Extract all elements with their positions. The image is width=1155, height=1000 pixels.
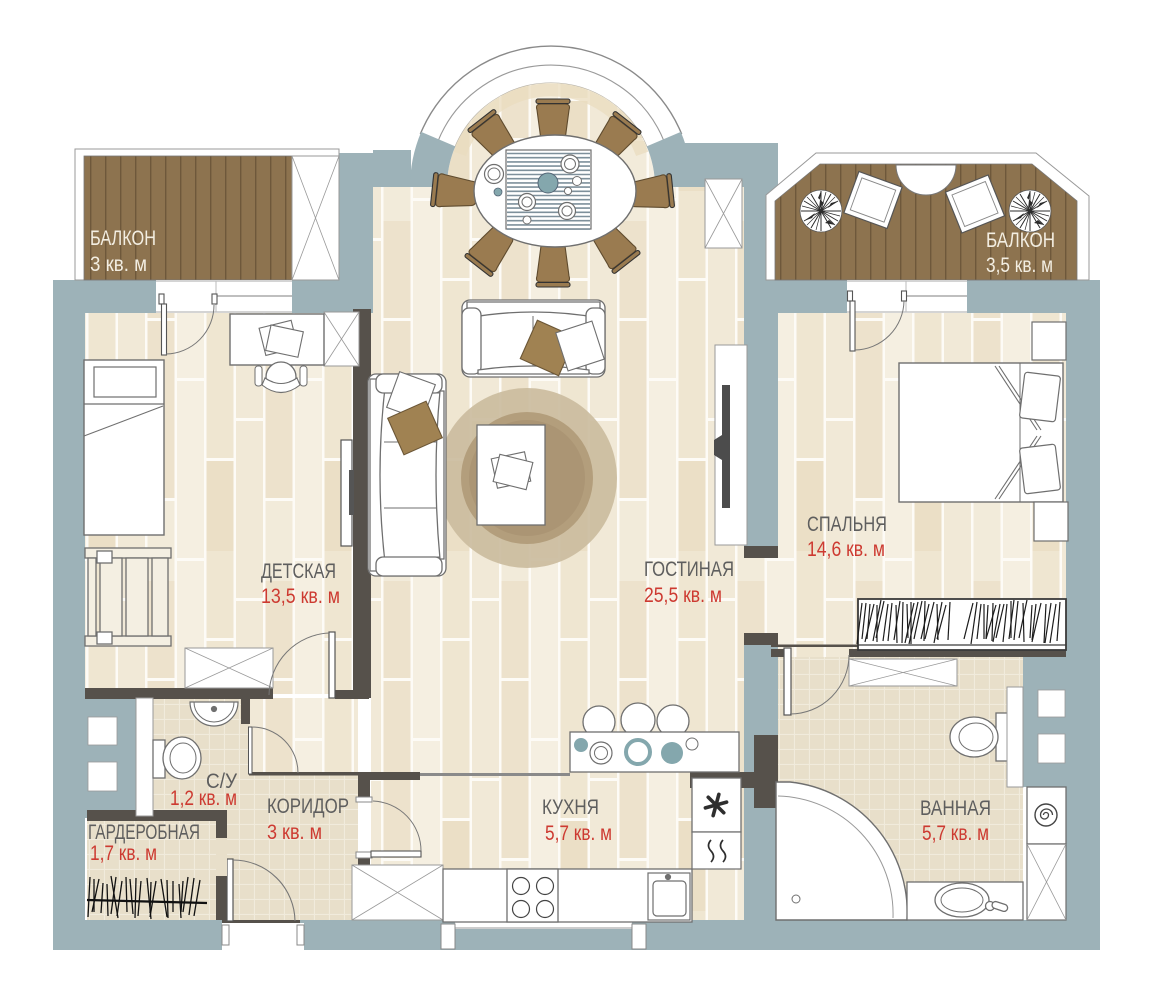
svg-text:БАЛКОН: БАЛКОН <box>986 229 1055 252</box>
svg-text:1,7 кв. м: 1,7 кв. м <box>90 842 157 865</box>
svg-text:ДЕТСКАЯ: ДЕТСКАЯ <box>261 560 336 583</box>
svg-text:3,5 кв. м: 3,5 кв. м <box>986 254 1053 277</box>
svg-text:5,7 кв. м: 5,7 кв. м <box>922 822 989 845</box>
svg-text:ВАННАЯ: ВАННАЯ <box>920 797 991 820</box>
svg-text:5,7 кв. м: 5,7 кв. м <box>545 822 612 845</box>
svg-text:КУХНЯ: КУХНЯ <box>542 796 599 819</box>
svg-text:3 кв. м: 3 кв. м <box>90 253 147 276</box>
svg-text:1,2 кв. м: 1,2 кв. м <box>170 787 237 810</box>
svg-text:13,5 кв. м: 13,5 кв. м <box>261 585 340 608</box>
svg-text:ГАРДЕРОБНАЯ: ГАРДЕРОБНАЯ <box>88 821 200 844</box>
svg-text:25,5 кв. м: 25,5 кв. м <box>644 584 722 607</box>
svg-text:КОРИДОР: КОРИДОР <box>267 795 349 818</box>
svg-text:БАЛКОН: БАЛКОН <box>90 227 156 250</box>
svg-text:3 кв. м: 3 кв. м <box>267 821 322 844</box>
svg-text:СПАЛЬНЯ: СПАЛЬНЯ <box>807 513 887 536</box>
svg-text:14,6 кв. м: 14,6 кв. м <box>807 538 885 561</box>
svg-text:ГОСТИНАЯ: ГОСТИНАЯ <box>644 558 734 581</box>
